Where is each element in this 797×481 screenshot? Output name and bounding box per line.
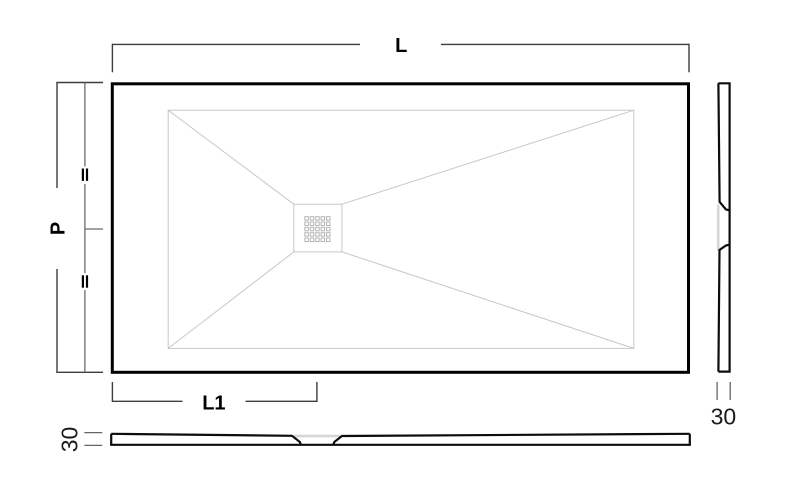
svg-text:L1: L1: [202, 393, 225, 415]
svg-text:30: 30: [711, 404, 737, 430]
svg-text:30: 30: [57, 427, 83, 453]
svg-text:P: P: [48, 222, 70, 235]
svg-text:L: L: [395, 35, 407, 57]
